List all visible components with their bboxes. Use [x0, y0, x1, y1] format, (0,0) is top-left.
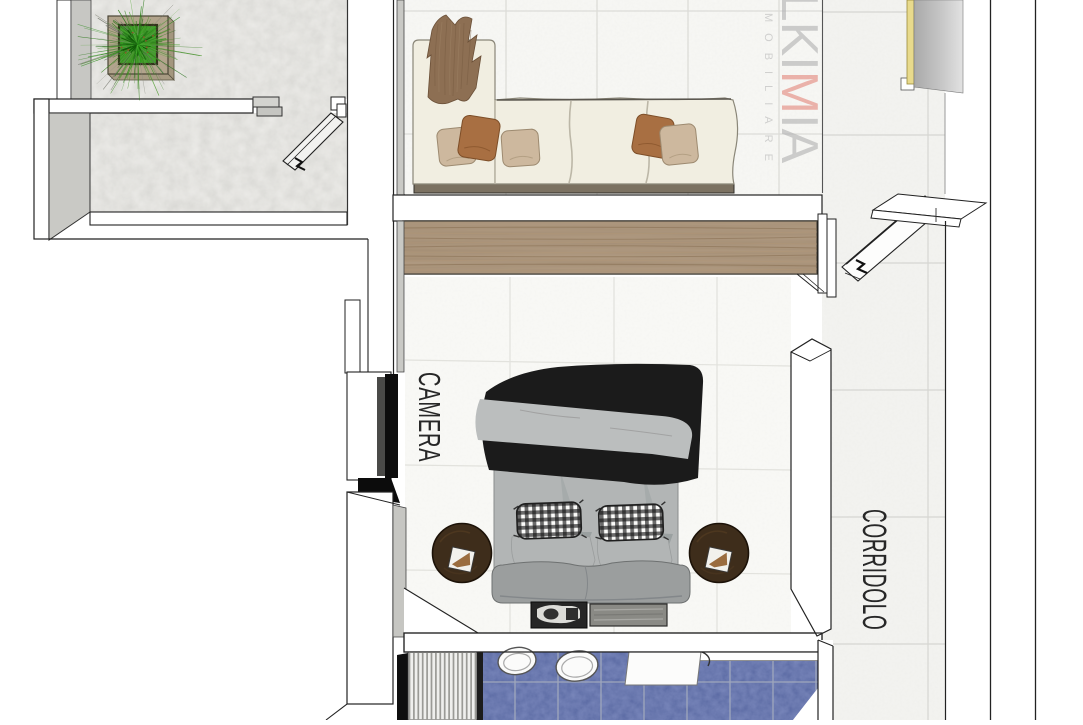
svg-text:MOBILIARE: MOBILIARE [762, 13, 774, 172]
svg-text:ALKIMIA: ALKIMIA [770, 0, 828, 164]
svg-text:CORRIDOLO: CORRIDOLO [855, 509, 894, 631]
svg-text:CAMERA: CAMERA [412, 372, 446, 462]
